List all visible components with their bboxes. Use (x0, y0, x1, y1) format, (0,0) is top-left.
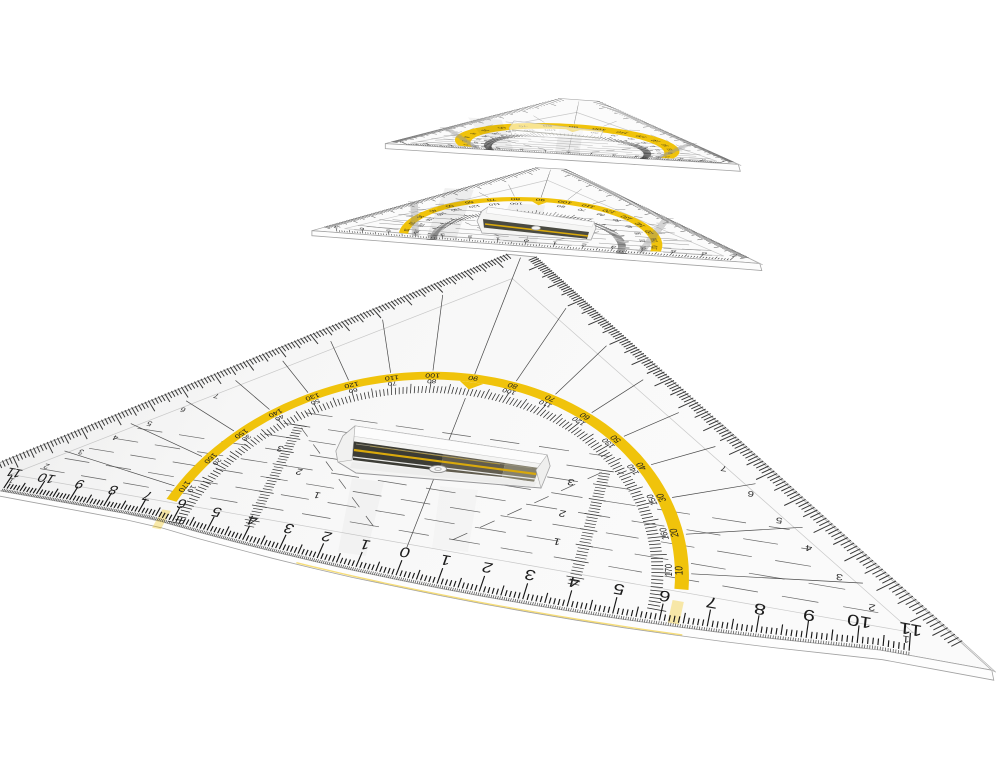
svg-text:5: 5 (385, 229, 391, 232)
svg-text:2: 2 (612, 154, 618, 156)
svg-text:7: 7 (720, 463, 728, 472)
svg-text:2: 2 (519, 148, 524, 150)
svg-text:20: 20 (655, 153, 662, 154)
svg-text:1: 1 (552, 241, 559, 245)
svg-text:2: 2 (580, 243, 587, 247)
svg-text:1: 1 (543, 150, 548, 152)
svg-text:6: 6 (359, 227, 365, 230)
svg-text:90: 90 (535, 198, 546, 202)
svg-text:70: 70 (485, 198, 497, 202)
svg-text:4: 4 (805, 542, 813, 553)
svg-text:170: 170 (651, 245, 660, 249)
svg-text:30: 30 (653, 149, 661, 150)
svg-text:70: 70 (387, 380, 397, 386)
svg-text:3: 3 (836, 571, 844, 582)
svg-text:5: 5 (775, 515, 783, 525)
svg-text:1: 1 (589, 152, 594, 154)
svg-text:170: 170 (663, 564, 675, 577)
svg-text:160: 160 (657, 527, 671, 540)
svg-text:10: 10 (846, 610, 873, 632)
svg-text:10: 10 (673, 565, 686, 575)
svg-text:80: 80 (427, 378, 437, 384)
svg-text:9: 9 (802, 605, 816, 624)
svg-text:6: 6 (746, 488, 755, 498)
svg-text:2: 2 (467, 235, 473, 238)
svg-text:2: 2 (868, 601, 876, 612)
svg-text:20: 20 (639, 239, 648, 242)
svg-text:1: 1 (902, 633, 910, 646)
svg-text:80: 80 (510, 197, 521, 200)
